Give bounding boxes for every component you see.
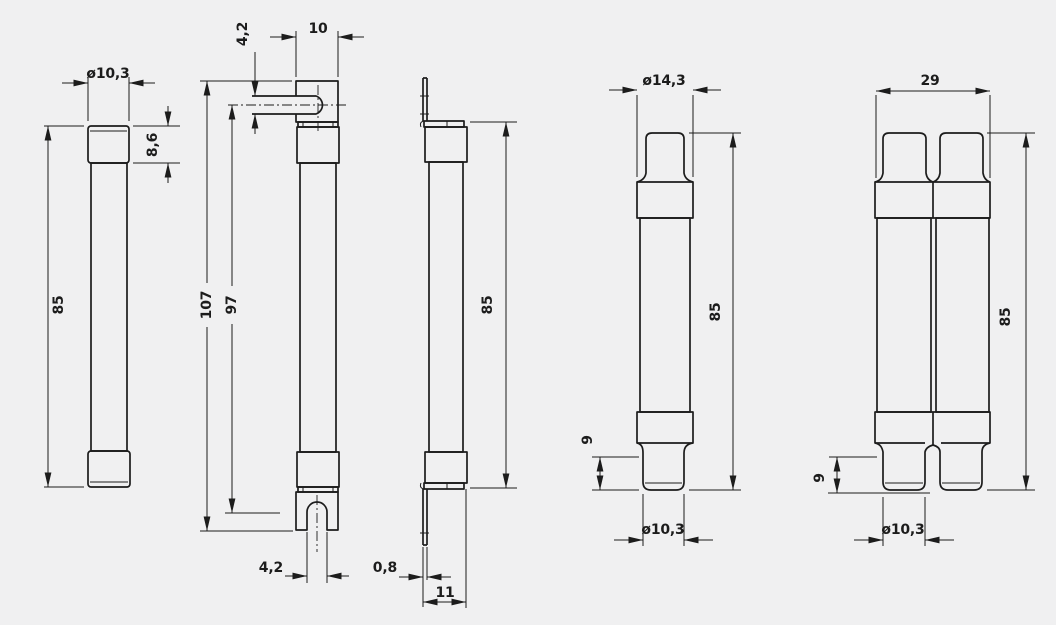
fig3-bottom-cap <box>425 452 467 483</box>
dim-fig3-length: 85 <box>480 295 496 314</box>
dim-fig1-cap-height: 8,6 <box>145 133 161 157</box>
figure-cylindrical-fuse-front: ø10,3 8,6 85 <box>44 66 180 487</box>
fig2-top-cap <box>297 127 339 163</box>
dim-fig4-cap-diameter: ø14,3 <box>642 73 685 89</box>
fig3-top-cap <box>425 127 467 162</box>
fig3-body <box>429 162 463 452</box>
dim-fig3-tag-thickness: 0,8 <box>373 560 397 576</box>
dim-fig4-tip-length: 9 <box>580 435 596 445</box>
fig3-top-flange <box>424 121 464 127</box>
dim-fig5-tip-diameter: ø10,3 <box>881 522 924 538</box>
figure-twin-fuse-front: 29 85 9 ø10,3 <box>812 73 1035 546</box>
figure-bolt-tag-fuse-side: 85 0,8 11 <box>373 78 517 608</box>
fig3-bottom-flange <box>424 483 464 489</box>
dim-fig4-length: 85 <box>708 302 724 321</box>
technical-drawing-canvas: ø10,3 8,6 85 10 <box>0 0 1056 625</box>
fig5-left-body <box>877 218 931 412</box>
fig1-body <box>91 163 127 451</box>
dim-fig2-bottom-slot-width: 4,2 <box>259 560 283 576</box>
dim-fig2-slot-width: 4,2 <box>235 22 251 46</box>
dim-fig1-diameter: ø10,3 <box>86 66 129 82</box>
fig4-striker-knob-cap <box>637 133 693 218</box>
fig2-top-tag <box>296 81 338 122</box>
figure-striker-fuse-front: ø14,3 85 9 ø10,3 <box>580 73 741 546</box>
fig2-body <box>300 163 336 452</box>
dim-fig5-tip-length: 9 <box>812 473 828 483</box>
figure-bolt-tag-fuse-front: 10 4,2 107 97 4,2 <box>199 21 364 583</box>
dim-fig1-length: 85 <box>51 295 67 314</box>
fig4-body <box>640 218 690 412</box>
fig1-top-cap <box>88 126 129 163</box>
dim-fig2-tag-width: 10 <box>308 21 328 37</box>
dim-fig2-slot-centers: 97 <box>224 295 240 314</box>
dim-fig5-overall-width: 29 <box>920 73 939 89</box>
dim-fig5-length: 85 <box>998 307 1014 326</box>
dim-fig4-tip-diameter: ø10,3 <box>641 522 684 538</box>
fig5-right-body <box>936 218 989 412</box>
dim-fig3-tag-depth: 11 <box>435 585 454 601</box>
fig2-bottom-cap <box>297 452 339 487</box>
fig4-bottom-cap-tip <box>637 412 693 490</box>
dim-fig2-overall-length: 107 <box>199 291 215 320</box>
